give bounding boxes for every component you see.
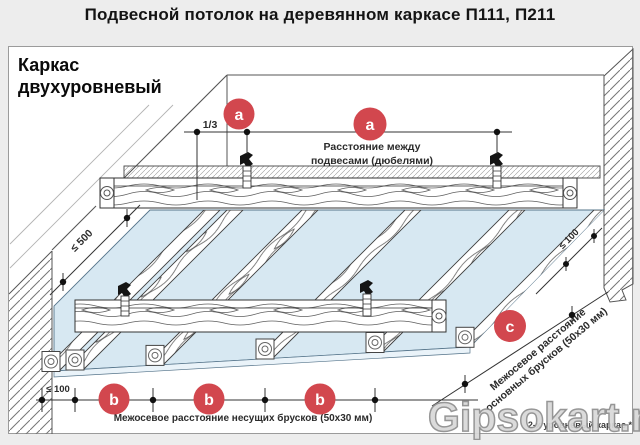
main-bar-middle	[75, 300, 446, 332]
main-bar-top	[100, 178, 577, 208]
hanger-spacing-label-1: Расстояние между	[324, 141, 421, 153]
fraction-label: 1/3	[203, 119, 218, 131]
right-wall-hatch	[604, 49, 633, 302]
marker-c-letter: c	[506, 319, 515, 336]
heading-line-2: двухуровневый	[18, 76, 162, 98]
page: Подвесной потолок на деревянном каркасе …	[0, 0, 640, 445]
watermark: Gipsokart.ru	[428, 394, 640, 441]
marker-a-1-letter: a	[235, 107, 244, 124]
marker-a-2-letter: a	[366, 117, 375, 134]
diagram-heading: Каркас двухуровневый	[18, 54, 162, 98]
bottom-max-label: ≤ 100	[46, 384, 70, 395]
heading-line-1: Каркас	[18, 54, 162, 76]
carrier-spacing-label: Межосевое расстояние несущих брусков (50…	[114, 412, 373, 424]
marker-b-2-letter: b	[204, 392, 214, 409]
wall-rail	[124, 166, 600, 178]
marker-b-3-letter: b	[315, 392, 325, 409]
hanger-spacing-label-2: подвесами (дюбелями)	[311, 155, 433, 167]
marker-b-1-letter: b	[109, 392, 119, 409]
